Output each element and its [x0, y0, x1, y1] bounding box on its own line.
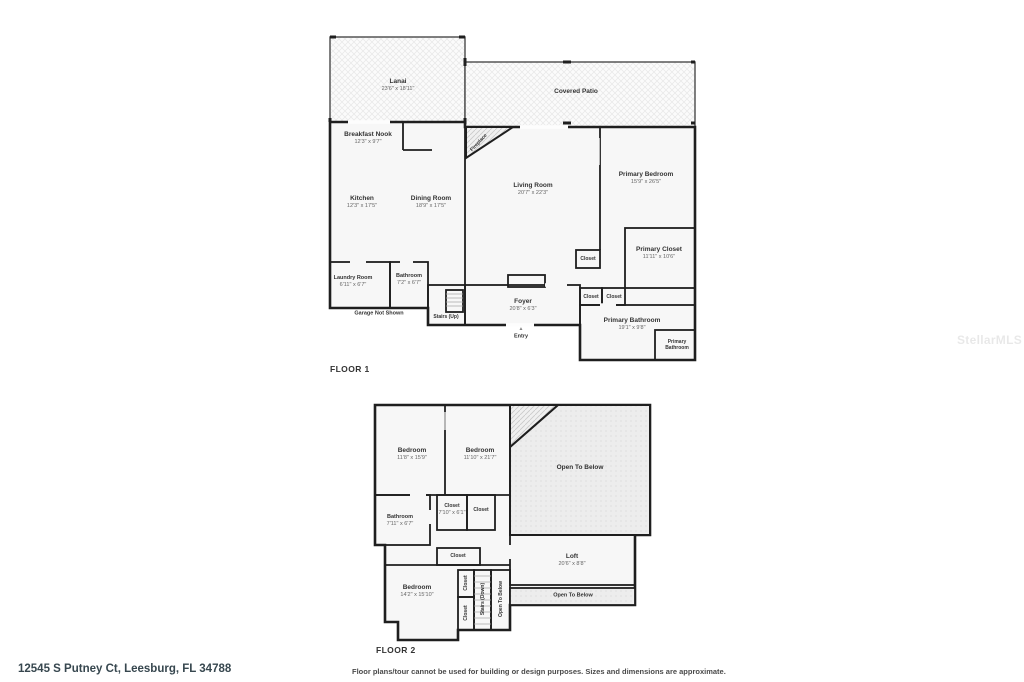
property-address: 12545 S Putney Ct, Leesburg, FL 34788: [18, 663, 231, 675]
room-dims: 15'9" x 26'5": [619, 180, 674, 187]
room-label-primary-closet: Primary Closet 11'11" x 10'6": [636, 246, 682, 262]
room-name: Bedroom: [464, 447, 497, 455]
room-label-closet-c1: Closet 7'10" x 6'1": [438, 503, 465, 517]
room-name: Closet: [583, 294, 598, 301]
room-name: Open To Below: [498, 581, 505, 617]
room-name: Closet: [606, 294, 621, 301]
disclaimer-text: Floor plans/tour cannot be used for buil…: [352, 667, 726, 676]
room-label-closet-c2: Closet: [473, 507, 488, 514]
room-dims: 6'11" x 6'7": [334, 282, 373, 289]
room-label-loft: Loft 20'6" x 8'8": [558, 553, 585, 569]
room-name: Closet: [463, 605, 470, 620]
room-label-lanai: Lanai 23'6" x 18'11": [382, 78, 415, 94]
note-text: Stairs (Up): [433, 314, 458, 321]
room-name: Closet: [580, 256, 595, 263]
room-dims: 12'3" x 17'5": [347, 204, 377, 211]
room-dims: 11'10" x 21'7": [464, 456, 497, 463]
room-name: Primary Bathroom: [659, 339, 695, 351]
room-label-bedroom-mid: Bedroom 11'10" x 21'7": [464, 447, 497, 463]
room-label-bedroom-bottom: Bedroom 14'2" x 15'10": [400, 584, 433, 600]
room-label-breakfast-nook: Breakfast Nook 12'3" x 9'7": [344, 131, 392, 147]
room-dims: 20'8" x 6'3": [509, 307, 536, 314]
room-label-kitchen: Kitchen 12'3" x 17'5": [347, 195, 377, 211]
room-dims: 7'2" x 6'7": [396, 280, 422, 287]
room-label-closet-v2: Closet: [463, 605, 470, 620]
room-name: Covered Patio: [554, 88, 598, 96]
room-name: Living Room: [513, 182, 552, 190]
room-label-dining-room: Dining Room 18'9" x 17'5": [411, 195, 451, 211]
room-label-closet-small: Closet: [580, 256, 595, 263]
room-name: Bathroom: [387, 514, 414, 521]
stellar-mls-watermark: StellarMLS: [957, 333, 1022, 347]
room-label-open-to-below-strip: Open To Below: [553, 592, 593, 599]
room-label-living-room: Living Room 20'7" x 22'3": [513, 182, 552, 198]
garage-note: Garage Not Shown: [354, 310, 403, 317]
room-dims: 12'3" x 9'7": [344, 140, 392, 147]
room-name: Kitchen: [347, 195, 377, 203]
room-name: Closet: [450, 553, 465, 560]
open-to-below-vertical-label: Open To Below: [498, 581, 505, 617]
room-name: Bedroom: [400, 584, 433, 592]
room-name: Lanai: [382, 78, 415, 86]
room-label-bathroom1: Bathroom 7'2" x 6'7": [396, 273, 422, 287]
room-dims: 18'9" x 17'5": [411, 204, 451, 211]
room-dims: 11'11" x 10'6": [636, 255, 682, 262]
room-name: Primary Closet: [636, 246, 682, 254]
room-name: Breakfast Nook: [344, 131, 392, 139]
room-label-laundry: Laundry Room 6'11" x 6'7": [334, 275, 373, 289]
entry-arrow-icon: ▲: [519, 326, 524, 332]
room-dims: 20'6" x 8'8": [558, 562, 585, 569]
floorplan-page: Lanai 23'6" x 18'11" Covered Patio Break…: [0, 0, 1024, 682]
room-dims: 19'1" x 9'8": [604, 326, 661, 333]
room-label-closet-h: Closet: [450, 553, 465, 560]
room-name: Loft: [558, 553, 585, 561]
floor2-title: FLOOR 2: [376, 645, 416, 655]
room-label-covered-patio: Covered Patio: [554, 88, 598, 96]
note-text: Garage Not Shown: [354, 310, 403, 317]
note-text: Entry: [514, 333, 528, 340]
stairs-down-label: Stairs (Down): [480, 583, 487, 615]
room-label-bedroom-left: Bedroom 11'8" x 15'9": [397, 447, 427, 463]
room-name: Primary Bedroom: [619, 171, 674, 179]
room-name: Bedroom: [397, 447, 427, 455]
room-dims: 7'11" x 6'7": [387, 521, 414, 528]
room-name: Open To Below: [557, 464, 604, 472]
floorplan-drawing: [0, 0, 1024, 682]
room-name: Dining Room: [411, 195, 451, 203]
room-label-closet-a: Closet: [583, 294, 598, 301]
room-dims: 7'10" x 6'1": [438, 510, 465, 517]
room-name: Closet: [473, 507, 488, 514]
room-dims: 14'2" x 15'10": [400, 593, 433, 600]
room-dims: 20'7" x 22'3": [513, 191, 552, 198]
room-label-open-to-below: Open To Below: [557, 464, 604, 472]
room-name: Closet: [463, 575, 470, 590]
room-label-foyer: Foyer 20'8" x 6'3": [509, 298, 536, 314]
room-name: Primary Bathroom: [604, 317, 661, 325]
stairs-up-label: Stairs (Up): [433, 314, 458, 321]
room-name: Open To Below: [553, 592, 593, 599]
room-label-primary-bedroom: Primary Bedroom 15'9" x 26'5": [619, 171, 674, 187]
room-dims: 23'6" x 18'11": [382, 87, 415, 94]
room-dims: 11'8" x 15'9": [397, 456, 427, 463]
entry-label: Entry: [514, 333, 528, 340]
room-name: Foyer: [509, 298, 536, 306]
floor1-title: FLOOR 1: [330, 364, 370, 374]
room-name: Bathroom: [396, 273, 422, 280]
room-label-closet-b: Closet: [606, 294, 621, 301]
room-name: Stairs (Down): [480, 583, 487, 615]
room-label-bathroom2: Bathroom 7'11" x 6'7": [387, 514, 414, 528]
room-label-closet-v1: Closet: [463, 575, 470, 590]
room-label-primary-bathroom-small: Primary Bathroom: [659, 339, 695, 351]
room-label-primary-bathroom: Primary Bathroom 19'1" x 9'8": [604, 317, 661, 333]
room-name: Laundry Room: [334, 275, 373, 282]
